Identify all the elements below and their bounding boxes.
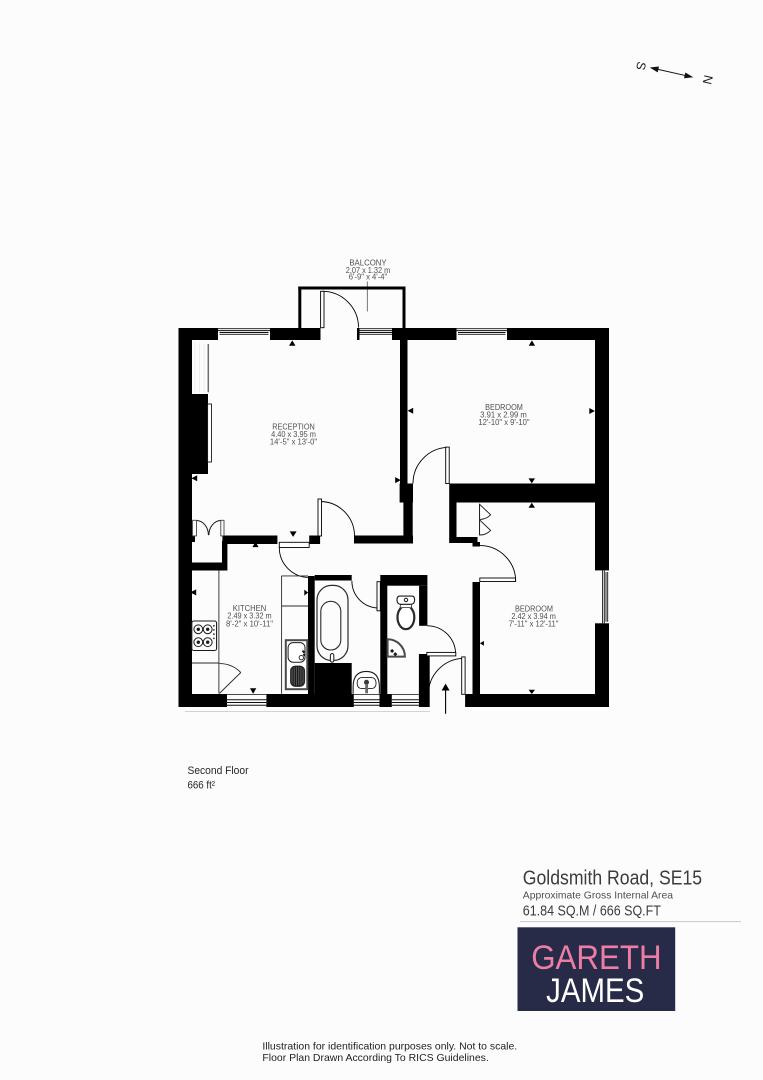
svg-text:7'-11" x 12'-11": 7'-11" x 12'-11" bbox=[509, 620, 559, 629]
svg-text:N: N bbox=[700, 74, 716, 86]
svg-text:Floor Plan Drawn According To: Floor Plan Drawn According To RICS Guide… bbox=[262, 1053, 488, 1064]
svg-text:12'-10" x 9'-10": 12'-10" x 9'-10" bbox=[478, 418, 529, 427]
svg-text:Goldsmith Road, SE15: Goldsmith Road, SE15 bbox=[523, 867, 702, 890]
svg-text:JAMES: JAMES bbox=[546, 972, 644, 1010]
svg-text:14'-5" x 13'-0": 14'-5" x 13'-0" bbox=[270, 438, 317, 447]
svg-text:Approximate Gross Internal Are: Approximate Gross Internal Area bbox=[523, 889, 673, 901]
svg-text:61.84 SQ.M / 666 SQ.FT: 61.84 SQ.M / 666 SQ.FT bbox=[523, 903, 661, 919]
svg-text:666 ft²: 666 ft² bbox=[188, 779, 216, 791]
svg-text:8'-2" x 10'-11": 8'-2" x 10'-11" bbox=[226, 619, 273, 628]
svg-text:Second Floor: Second Floor bbox=[188, 765, 249, 777]
svg-text:S: S bbox=[633, 60, 649, 71]
svg-text:6'-9" x 4'-4": 6'-9" x 4'-4" bbox=[349, 273, 388, 282]
svg-text:Illustration for identificatio: Illustration for identification purposes… bbox=[262, 1041, 517, 1052]
